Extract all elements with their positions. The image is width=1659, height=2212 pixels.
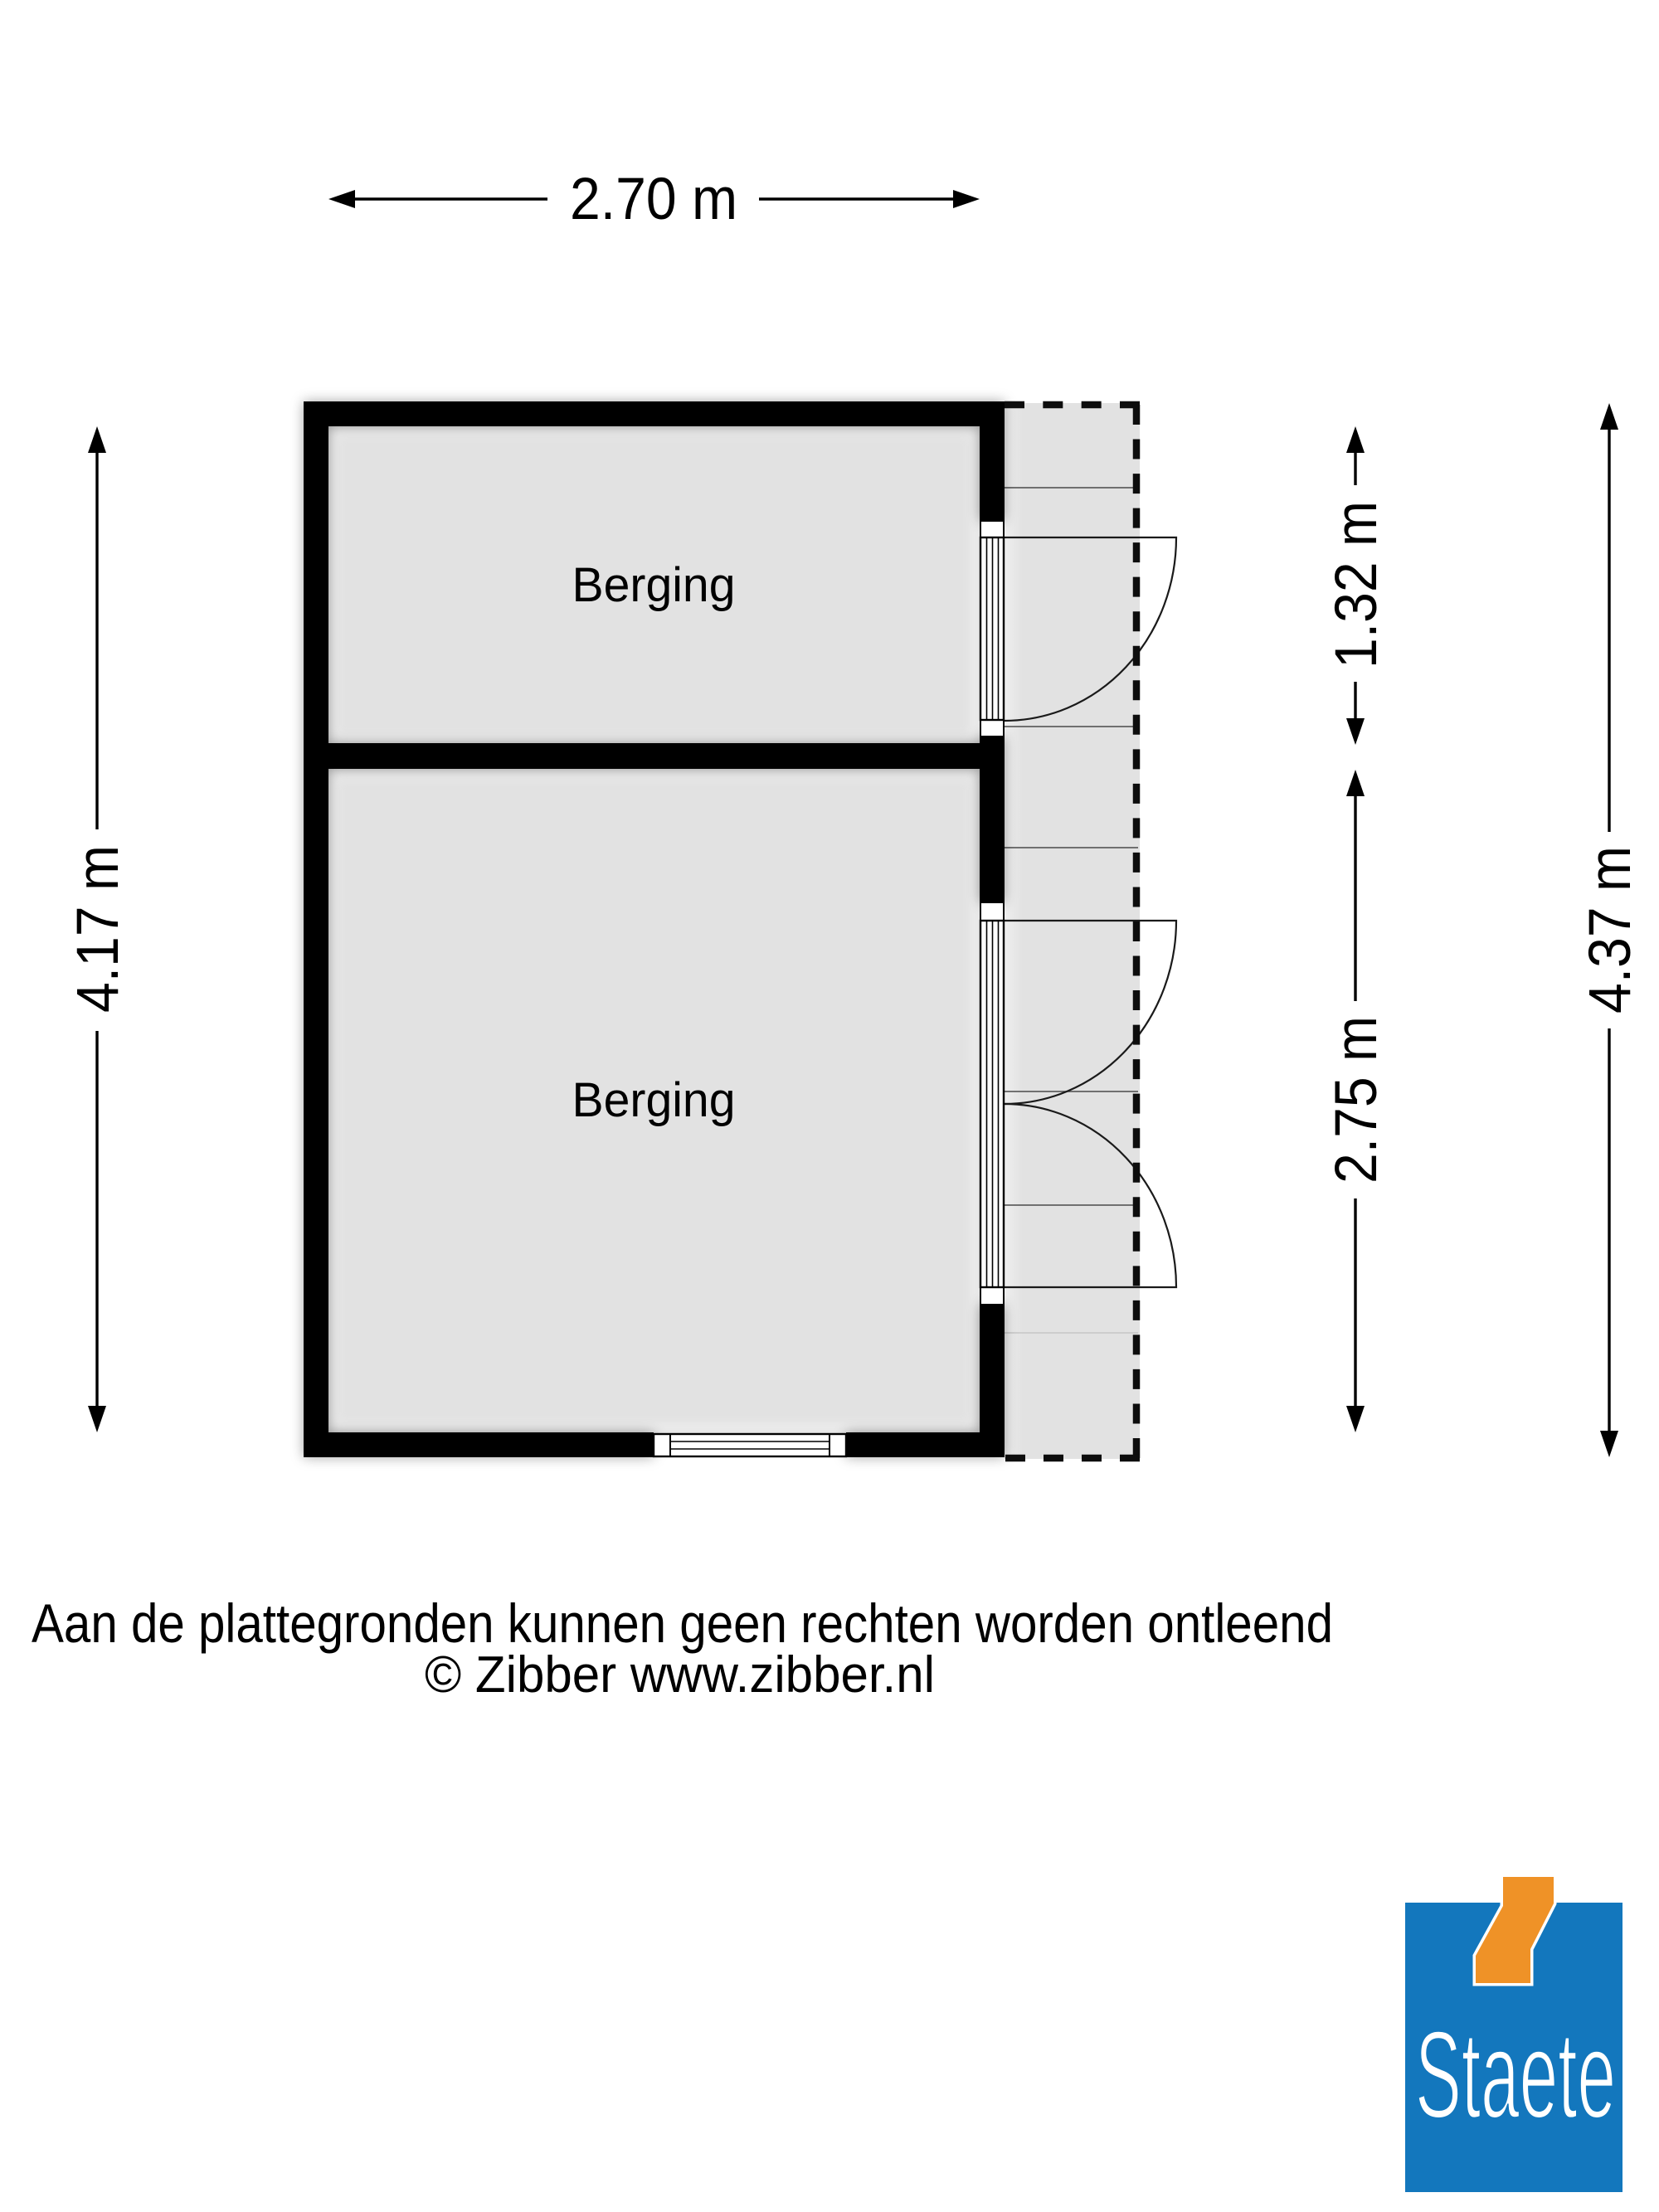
svg-text:© Zibber www.zibber.nl: © Zibber www.zibber.nl: [425, 1646, 935, 1704]
svg-text:Staete: Staete: [1415, 2005, 1616, 2144]
svg-text:1.32 m: 1.32 m: [1324, 501, 1389, 668]
svg-text:4.37 m: 4.37 m: [1578, 846, 1643, 1014]
svg-text:Aan de plattegronden kunnen ge: Aan de plattegronden kunnen geen rechten…: [32, 1592, 1333, 1654]
svg-text:2.70 m: 2.70 m: [570, 167, 737, 232]
svg-text:Berging: Berging: [572, 1073, 736, 1127]
svg-text:Berging: Berging: [572, 558, 736, 612]
svg-text:2.75 m: 2.75 m: [1324, 1016, 1389, 1184]
svg-text:4.17 m: 4.17 m: [66, 845, 131, 1013]
